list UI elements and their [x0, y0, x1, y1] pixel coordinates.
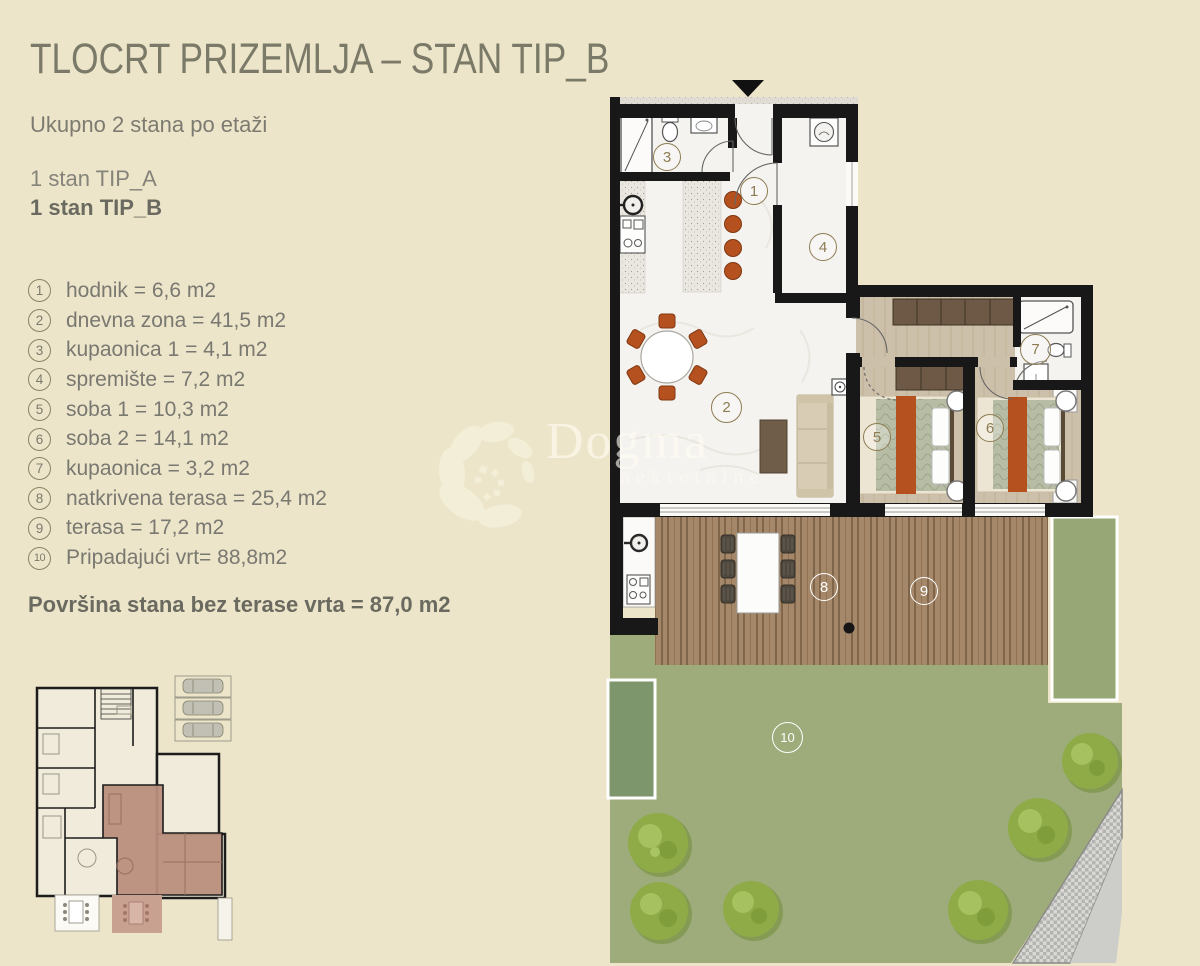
- entrance-arrow-icon: [732, 80, 764, 97]
- legend-number-badge: 3: [28, 339, 51, 362]
- stove-icon: [620, 216, 645, 253]
- hedge: [608, 680, 655, 798]
- legend-number-badge: 4: [28, 368, 51, 391]
- legend-item: 1hodnik = 6,6 m2: [28, 276, 327, 306]
- legend-label: soba 2 = 14,1 m2: [66, 427, 229, 451]
- plan-label-room-6: 6: [976, 414, 1004, 442]
- kitchen-island: [683, 178, 721, 292]
- bedroom5-wardrobe: [896, 366, 970, 390]
- legend-item: 5soba 1 = 10,3 m2: [28, 395, 327, 425]
- bed-room6: [977, 388, 1077, 503]
- page-title: TLOCRT PRIZEMLJA – STAN TIP_B: [30, 35, 653, 84]
- legend-number-badge: 8: [28, 487, 51, 510]
- legend-number-badge: 9: [28, 517, 51, 540]
- garden-side-strip: [1052, 517, 1117, 700]
- thumb-side-terrace: [218, 898, 232, 940]
- legend-label: spremište = 7,2 m2: [66, 368, 245, 392]
- legend-number-badge: 5: [28, 398, 51, 421]
- unit-tip-b-text: 1 stan TIP_B: [30, 195, 162, 221]
- plan-label-room-7: 7: [1020, 334, 1051, 365]
- legend-label: Pripadajući vrt= 88,8m2: [66, 546, 287, 570]
- watermark-flower-icon: [428, 414, 548, 539]
- legend-item: 6soba 2 = 14,1 m2: [28, 424, 327, 454]
- plan-label-room-4: 4: [809, 233, 837, 261]
- legend-label: kupaonica 1 = 4,1 m2: [66, 338, 267, 362]
- unit-tip-a-text: 1 stan TIP_A: [30, 166, 157, 192]
- legend-label: hodnik = 6,6 m2: [66, 279, 216, 303]
- legend-item: 10Pripadajući vrt= 88,8m2: [28, 543, 327, 573]
- legend-number-badge: 10: [28, 547, 51, 570]
- floor-plan-drawing: [600, 75, 1140, 966]
- outdoor-kitchen: [623, 517, 655, 607]
- units-per-floor-text: Ukupno 2 stana po etaži: [30, 112, 267, 138]
- plan-label-room-2: 2: [711, 392, 742, 423]
- legend-item: 2dnevna zona = 41,5 m2: [28, 306, 327, 336]
- area-summary: Površina stana bez terase vrta = 87,0 m2: [28, 592, 451, 618]
- plan-label-room-5: 5: [863, 423, 891, 451]
- plan-label-room-8: 8: [810, 573, 838, 601]
- legend-item: 4spremište = 7,2 m2: [28, 365, 327, 395]
- ac-unit-icon: [832, 379, 848, 395]
- legend-item: 7kupaonica = 3,2 m2: [28, 454, 327, 484]
- legend-item: 3kupaonica 1 = 4,1 m2: [28, 335, 327, 365]
- plan-label-room-1: 1: [740, 177, 768, 205]
- legend-item: 8natkrivena terasa = 25,4 m2: [28, 484, 327, 514]
- sofa: [797, 395, 833, 497]
- legend-label: soba 1 = 10,3 m2: [66, 398, 229, 422]
- legend-number-badge: 2: [28, 309, 51, 332]
- terrace-column: [844, 623, 855, 634]
- legend-number-badge: 1: [28, 279, 51, 302]
- plan-label-room-3: 3: [653, 143, 681, 171]
- legend-label: natkrivena terasa = 25,4 m2: [66, 487, 327, 511]
- hall-wardrobe: [893, 299, 1015, 325]
- legend-label: terasa = 17,2 m2: [66, 516, 224, 540]
- room-legend: 1hodnik = 6,6 m2 2dnevna zona = 41,5 m2 …: [28, 276, 327, 573]
- coffee-table: [760, 420, 787, 473]
- legend-number-badge: 6: [28, 428, 51, 451]
- plan-label-room-10: 10: [772, 722, 803, 753]
- washing-machine-icon: [810, 118, 838, 146]
- legend-number-badge: 7: [28, 457, 51, 480]
- site-plan-thumbnail: [25, 666, 247, 964]
- legend-label: kupaonica = 3,2 m2: [66, 457, 250, 481]
- plan-label-room-9: 9: [910, 577, 938, 605]
- legend-item: 9terasa = 17,2 m2: [28, 514, 327, 544]
- thumb-parking: [175, 676, 231, 741]
- outdoor-grill-icon: [627, 575, 650, 604]
- legend-label: dnevna zona = 41,5 m2: [66, 309, 286, 333]
- outdoor-dining-table: [721, 533, 795, 613]
